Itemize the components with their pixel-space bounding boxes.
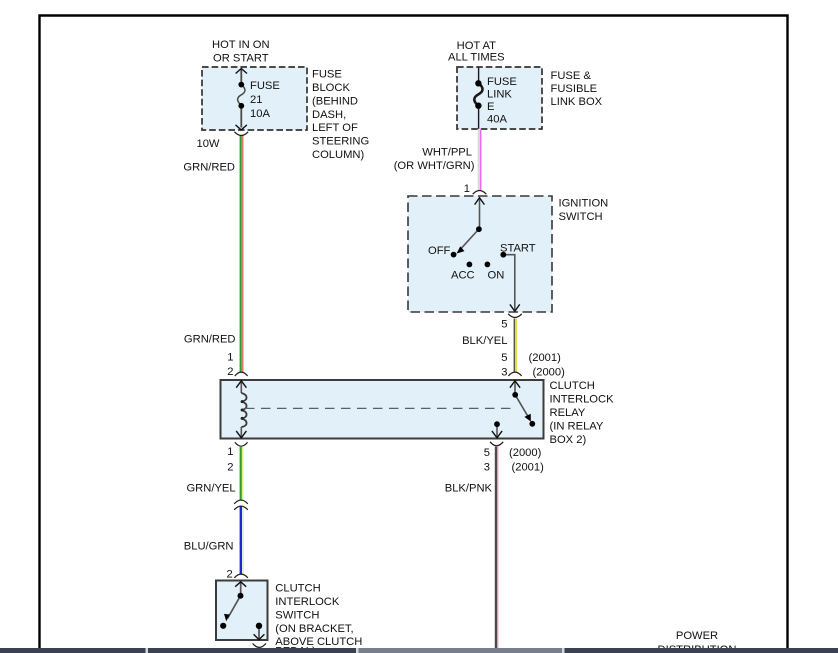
svg-text:FUSIBLE: FUSIBLE xyxy=(551,83,598,95)
svg-text:RELAY: RELAY xyxy=(550,407,586,419)
svg-text:FUSE &: FUSE & xyxy=(551,70,592,82)
svg-text:ACC: ACC xyxy=(451,270,475,282)
svg-text:STEERING: STEERING xyxy=(312,136,369,148)
svg-text:FUSE: FUSE xyxy=(250,80,280,92)
svg-text:ALL TIMES: ALL TIMES xyxy=(448,52,505,64)
svg-text:OFF: OFF xyxy=(428,245,451,257)
svg-text:FUSE: FUSE xyxy=(312,69,342,81)
svg-text:DASH,: DASH, xyxy=(312,109,346,121)
svg-text:LEFT OF: LEFT OF xyxy=(312,122,358,134)
svg-text:10W: 10W xyxy=(196,138,219,150)
svg-text:INTERLOCK: INTERLOCK xyxy=(550,394,615,406)
svg-text:HOT IN ON: HOT IN ON xyxy=(212,39,270,51)
svg-text:WHT/PPL: WHT/PPL xyxy=(422,146,472,158)
svg-text:10A: 10A xyxy=(250,108,270,120)
svg-text:BLK/PNK: BLK/PNK xyxy=(445,483,493,495)
svg-text:INTERLOCK: INTERLOCK xyxy=(275,596,340,608)
svg-text:2: 2 xyxy=(227,461,233,473)
svg-text:LINK: LINK xyxy=(487,89,512,101)
svg-text:GRN/RED: GRN/RED xyxy=(184,334,236,346)
svg-text:1: 1 xyxy=(227,446,233,458)
svg-text:SWITCH: SWITCH xyxy=(275,610,319,622)
svg-text:5: 5 xyxy=(484,447,490,459)
svg-text:LINK BOX: LINK BOX xyxy=(551,96,603,108)
svg-text:(OR WHT/GRN): (OR WHT/GRN) xyxy=(394,160,475,172)
svg-text:1: 1 xyxy=(464,183,470,195)
svg-text:3: 3 xyxy=(501,367,507,379)
svg-text:(BEHIND: (BEHIND xyxy=(312,95,358,107)
svg-text:HOT AT: HOT AT xyxy=(457,40,497,52)
svg-text:3: 3 xyxy=(484,462,490,474)
svg-text:GRN/RED: GRN/RED xyxy=(183,162,235,174)
svg-text:CLUTCH: CLUTCH xyxy=(275,583,320,595)
svg-text:(ON BRACKET,: (ON BRACKET, xyxy=(275,623,353,635)
svg-text:(2001): (2001) xyxy=(529,352,562,364)
svg-text:21: 21 xyxy=(250,94,262,106)
svg-text:COLUMN): COLUMN) xyxy=(312,149,364,161)
svg-text:FUSE: FUSE xyxy=(487,76,517,88)
svg-text:OR START: OR START xyxy=(213,53,269,65)
svg-text:BLOCK: BLOCK xyxy=(312,82,350,94)
svg-text:BLU/GRN: BLU/GRN xyxy=(184,541,234,553)
svg-text:E: E xyxy=(487,101,494,113)
svg-text:(2000): (2000) xyxy=(533,367,566,379)
svg-text:BLK/YEL: BLK/YEL xyxy=(462,335,507,347)
svg-text:IGNITION: IGNITION xyxy=(559,198,609,210)
svg-text:5: 5 xyxy=(501,319,507,331)
svg-text:GRN/YEL: GRN/YEL xyxy=(186,483,235,495)
svg-text:POWER: POWER xyxy=(676,630,718,642)
svg-text:(2000): (2000) xyxy=(509,447,542,459)
svg-text:5: 5 xyxy=(501,352,507,364)
svg-text:(IN RELAY: (IN RELAY xyxy=(550,421,604,433)
svg-text:1: 1 xyxy=(227,352,233,364)
svg-text:SWITCH: SWITCH xyxy=(559,211,603,223)
svg-text:40A: 40A xyxy=(487,114,507,126)
svg-text:2: 2 xyxy=(227,366,233,378)
svg-text:BOX 2): BOX 2) xyxy=(550,434,587,446)
svg-text:ON: ON xyxy=(488,270,505,282)
svg-text:(2001): (2001) xyxy=(512,462,545,474)
svg-text:START: START xyxy=(500,243,536,255)
svg-text:CLUTCH: CLUTCH xyxy=(550,380,595,392)
svg-text:2: 2 xyxy=(226,569,232,581)
